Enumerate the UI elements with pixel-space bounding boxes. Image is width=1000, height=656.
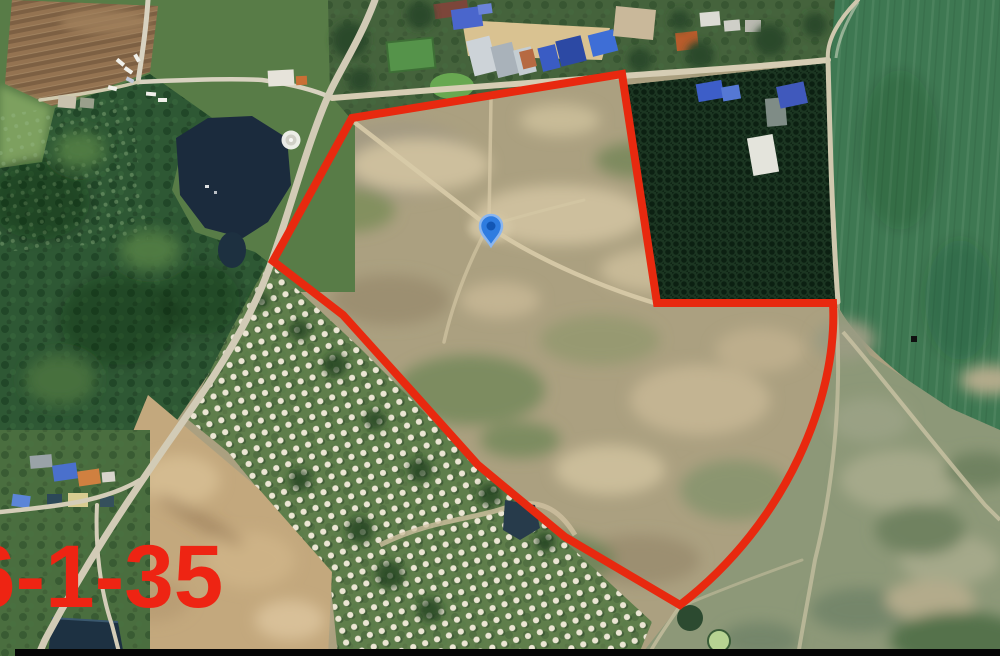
bottom-letterbox-bar <box>15 649 1000 656</box>
poi-circle-icon <box>282 131 301 150</box>
land-area-label: 6-1-35 <box>0 532 223 621</box>
tree-plantation <box>626 63 836 302</box>
satellite-map[interactable]: 6-1-35 <box>0 0 1000 656</box>
